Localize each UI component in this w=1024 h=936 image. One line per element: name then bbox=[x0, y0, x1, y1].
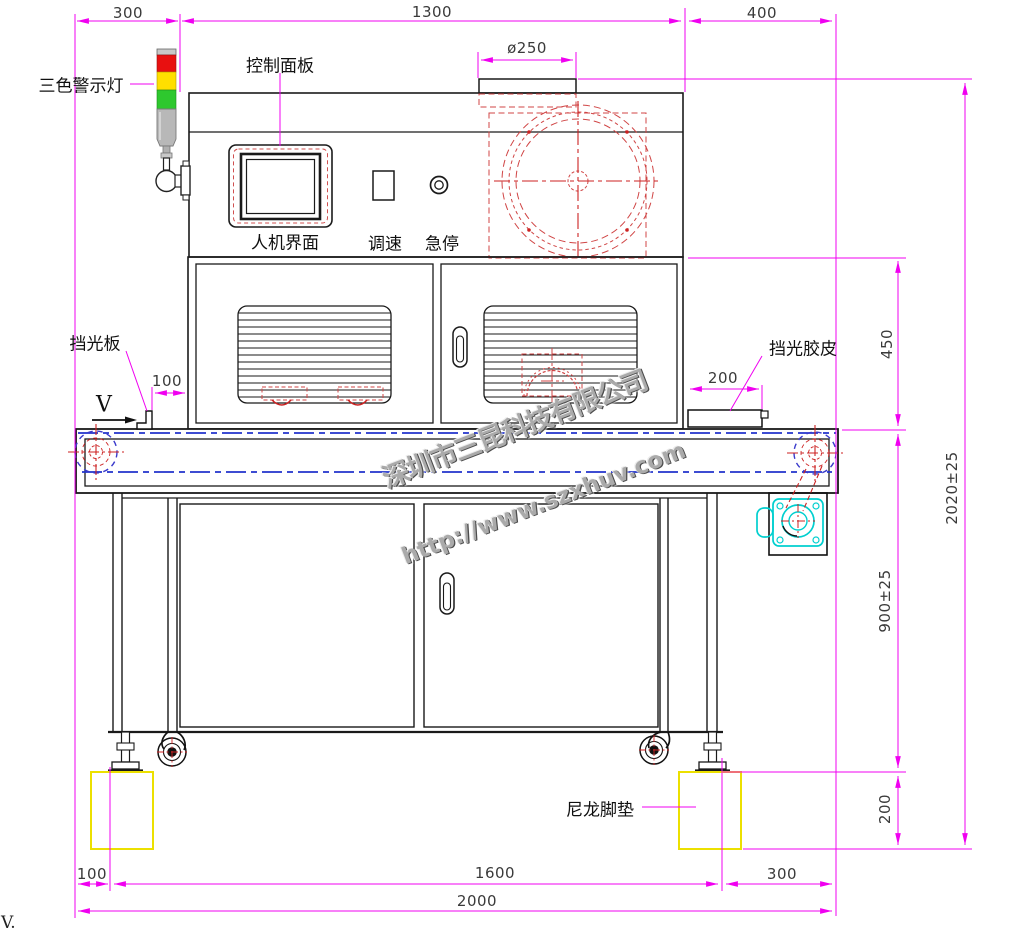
dim-total-height: 2020±25 bbox=[943, 451, 961, 524]
label-hmi: 人机界面 bbox=[251, 229, 319, 254]
label-speed: 调速 bbox=[368, 230, 402, 255]
label-direction-v: V bbox=[96, 393, 112, 418]
nylon-pad-left bbox=[91, 772, 153, 849]
left-door bbox=[196, 264, 433, 423]
estop-button bbox=[431, 177, 448, 194]
label-control-panel: 控制面板 bbox=[246, 52, 314, 77]
label-warning-light: 三色警示灯 bbox=[39, 72, 124, 97]
nylon-pad-right bbox=[679, 772, 741, 849]
warning-light-green bbox=[157, 90, 176, 109]
dim-bottom-total: 2000 bbox=[457, 892, 497, 910]
label-nylon-pad: 尼龙脚垫 bbox=[566, 796, 634, 821]
leveling-foot-left bbox=[108, 732, 143, 771]
dim-shield-plate-offset: 100 bbox=[152, 372, 182, 390]
speed-knob bbox=[373, 171, 394, 200]
direction-arrow bbox=[92, 417, 137, 424]
drawing-linework bbox=[0, 0, 1024, 936]
dim-bottom-right: 300 bbox=[767, 865, 797, 883]
lower-cabinet bbox=[108, 493, 723, 732]
dim-table-height: 900±25 bbox=[876, 569, 894, 632]
dim-top-center: 1300 bbox=[412, 3, 452, 21]
caster-right bbox=[639, 732, 669, 765]
dim-bottom-left: 100 bbox=[77, 865, 107, 883]
dim-top-left: 300 bbox=[113, 4, 143, 22]
dim-duct-diameter: ø250 bbox=[507, 39, 547, 57]
cabinet-left-door bbox=[180, 504, 414, 727]
warning-light-yellow bbox=[157, 72, 176, 90]
exhaust-duct bbox=[479, 79, 576, 93]
label-shield-rubber: 挡光胶皮 bbox=[769, 335, 837, 360]
corner-note: V. bbox=[1, 913, 16, 933]
label-estop: 急停 bbox=[425, 230, 459, 255]
nylon-foot-pads bbox=[91, 772, 741, 849]
leveling-foot-right bbox=[695, 732, 730, 771]
dim-lamp-section-height: 450 bbox=[878, 329, 896, 359]
warning-light-tower bbox=[156, 49, 190, 200]
upper-door-handle bbox=[453, 327, 467, 367]
caster-left bbox=[157, 732, 187, 767]
hmi-screen bbox=[229, 145, 332, 227]
fan-hidden-lines bbox=[479, 94, 660, 260]
dim-pad-height: 200 bbox=[876, 794, 894, 824]
cabinet-door-handle bbox=[440, 573, 454, 614]
dim-top-right: 400 bbox=[747, 4, 777, 22]
light-shield-plate bbox=[137, 411, 152, 429]
label-shield-plate: 挡光板 bbox=[70, 330, 121, 355]
light-shield-rubber bbox=[688, 410, 768, 427]
warning-light-red bbox=[157, 55, 176, 72]
shield-plate-leader bbox=[126, 351, 147, 411]
mount-ball-joint bbox=[156, 171, 177, 192]
dim-bottom-center: 1600 bbox=[475, 864, 515, 882]
cad-drawing-canvas: 深圳市三昆科技有限公司 http://www.szxhuv.com 300 13… bbox=[0, 0, 1024, 936]
dim-shield-rubber-length: 200 bbox=[708, 369, 738, 387]
